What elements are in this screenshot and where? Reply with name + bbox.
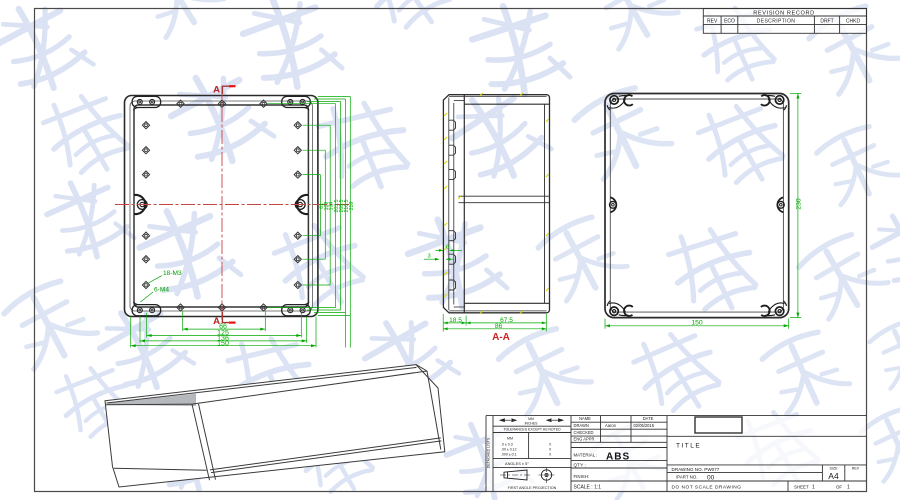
svg-text:ECO: ECO [724,19,735,25]
svg-text:REV: REV [707,19,718,25]
svg-text:A4: A4 [828,471,839,481]
svg-text:MM: MM [528,417,534,421]
svg-text:FINISH:: FINISH: [574,474,590,479]
svg-text:SCALE : 1:1: SCALE : 1:1 [574,485,602,491]
svg-text:6-M4: 6-M4 [154,287,169,294]
svg-text:18-M3: 18-M3 [163,270,182,277]
svg-text:TITLE: TITLE [676,443,701,450]
svg-text:DATE: DATE [643,416,654,421]
svg-text:A: A [213,84,220,95]
svg-text:ENG APPR: ENG APPR [574,436,595,441]
svg-text:18.5: 18.5 [449,317,462,324]
svg-text:02/05/2015: 02/05/2015 [634,423,655,428]
svg-text:DRAWING NO. PW077: DRAWING NO. PW077 [672,467,720,472]
svg-text:DETACHED LISTS: DETACHED LISTS [487,437,491,468]
svg-text:TOLERANCES EXCEPT AS NOTED: TOLERANCES EXCEPT AS NOTED [503,428,561,432]
svg-text:OF: OF [836,484,842,489]
svg-text:CHECKED: CHECKED [574,430,594,435]
svg-text:150: 150 [217,340,229,347]
svg-text:A-A: A-A [492,332,510,343]
svg-text:DRFT: DRFT [820,19,833,25]
svg-text:ANGLES ± 5°: ANGLES ± 5° [505,461,529,466]
svg-text:.0 ± 0.3: .0 ± 0.3 [501,443,513,447]
svg-text:00: 00 [707,475,715,482]
svg-text:150: 150 [691,319,703,326]
svg-text:FIRST ANGLE PROJECTION: FIRST ANGLE PROJECTION [508,486,557,490]
svg-text:DRAWN: DRAWN [574,423,589,428]
svg-text:86: 86 [495,323,503,330]
svg-text:.000 ± 0.1: .000 ± 0.1 [501,453,517,457]
svg-text:REV: REV [852,467,860,471]
svg-text:SIZE: SIZE [830,467,839,471]
svg-text:3: 3 [428,254,431,260]
svg-text:DESCRIPTION: DESCRIPTION [757,19,796,25]
svg-text:DO NOT SCALE DRAWING: DO NOT SCALE DRAWING [672,484,742,490]
svg-text:1: 1 [812,485,815,491]
svg-text:CHKD: CHKD [846,19,861,25]
svg-text:1: 1 [847,485,850,491]
svg-text:MATERIAL :: MATERIAL : [574,453,598,458]
svg-text:ABS: ABS [606,452,630,463]
svg-text:.00 ± 0.12: .00 ± 0.12 [501,448,517,452]
svg-text:QT'Y :: QT'Y : [574,462,586,467]
svg-text:219: 219 [349,202,355,211]
svg-text:INCHES: INCHES [525,421,539,425]
svg-text:230: 230 [796,198,803,210]
svg-text:NAME: NAME [579,416,591,421]
svg-text:REVISION RECORD: REVISION RECORD [753,10,815,16]
svg-text:6: 6 [446,245,449,251]
svg-text:SHEET: SHEET [794,484,809,489]
svg-text:Aaron: Aaron [605,423,617,428]
svg-text:MM: MM [507,437,513,441]
svg-text:/PART NO.: /PART NO. [676,475,697,480]
